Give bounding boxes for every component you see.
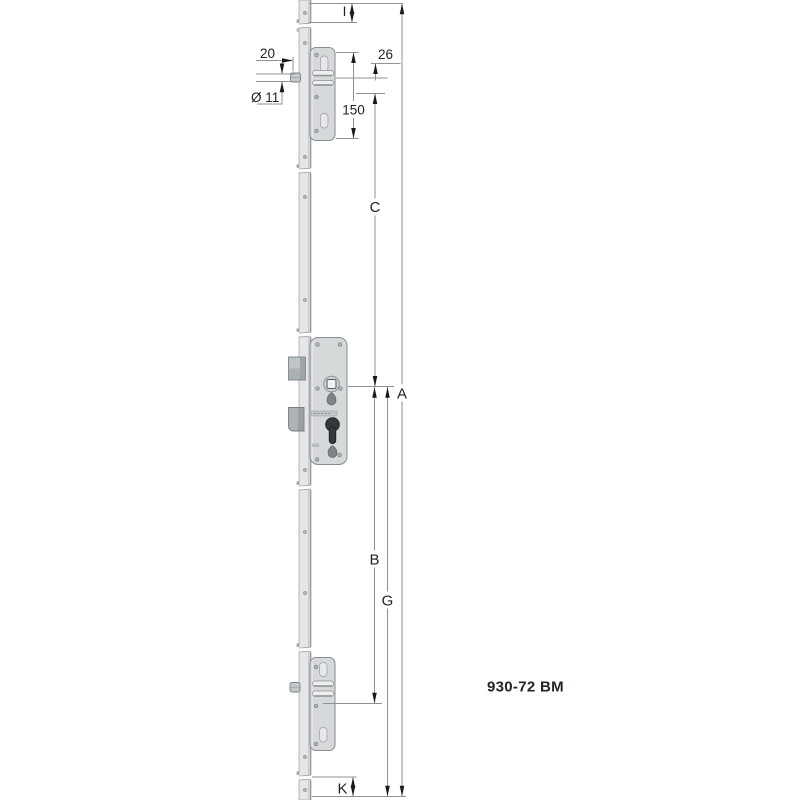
- latch-bolt: [289, 357, 306, 380]
- aux-lock-top: [310, 48, 335, 141]
- dim-label-26: 26: [378, 47, 393, 62]
- dim-label-a: A: [397, 386, 407, 403]
- dim-label-150: 150: [342, 103, 365, 118]
- pin-bottom: [290, 683, 300, 693]
- main-lock-case: [310, 338, 347, 465]
- multipoint-lock-diagram: I 20 Ø 11 26 150 C A B G K 930-72 BM: [0, 0, 800, 800]
- dim-label-20: 20: [260, 46, 275, 61]
- label-backgrounds: [343, 101, 410, 609]
- follower: [324, 376, 340, 392]
- case-marking: [312, 444, 319, 448]
- label-strip: [312, 411, 338, 416]
- dim-label-k: K: [337, 781, 347, 798]
- technical-drawing-page: I 20 Ø 11 26 150 C A B G K 930-72 BM: [0, 0, 800, 800]
- deadbolt: [289, 408, 305, 432]
- product-code: 930-72 BM: [487, 679, 564, 696]
- dim-label-g: G: [382, 593, 394, 610]
- dim-label-c: C: [370, 199, 381, 216]
- dim-label-dia11: Ø 11: [251, 90, 279, 105]
- dim-label-i: I: [343, 4, 347, 19]
- lock-rail: [299, 0, 311, 800]
- dim-label-b: B: [369, 552, 379, 569]
